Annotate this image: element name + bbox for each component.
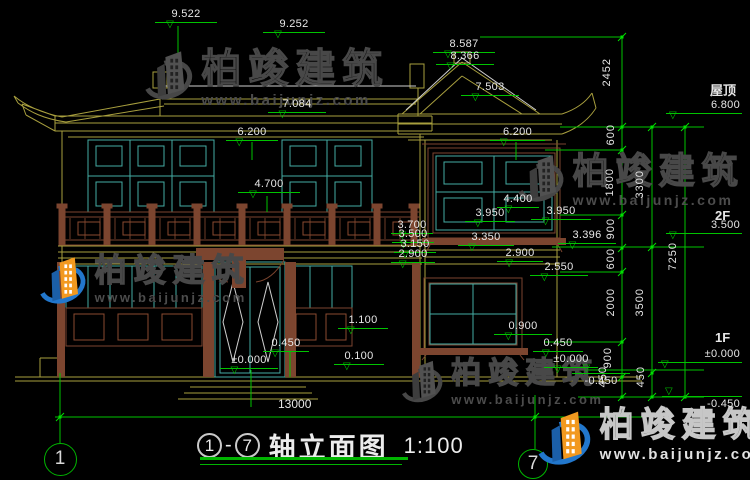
elevation-label: 3.950▽ [531,205,591,220]
chain-dimension-label: 3300 [635,170,646,198]
level-triangle-icon: ▽ [343,362,351,372]
title-underline-thick [200,457,408,460]
level-triangle-icon: ▽ [505,259,513,269]
level-triangle-icon: ▽ [235,138,243,148]
elevation-label: 8.366▽ [436,50,494,65]
title-scale: 1:100 [404,433,464,459]
level-triangle-icon: ▽ [500,138,508,148]
elevation-label: 0.100▽ [334,350,384,365]
elevation-label: 9.252▽ [263,18,325,33]
chain-dimension-label: 600 [606,248,617,269]
level-triangle-icon: ▽ [661,360,669,370]
elevation-label: 6.200▽ [490,126,545,141]
elevation-label: -0.450▽ [662,396,742,412]
chain-dimension-label: 600 [606,124,617,145]
chain-dimension-label: 450 [636,366,647,387]
chain-dimension-label: 900 [606,218,617,239]
elevation-label: 6.200▽ [226,126,278,141]
elevation-label: 0.450▽ [533,337,583,352]
title-axis-bubble-end: 7 [235,433,260,458]
level-triangle-icon: ▽ [399,260,407,270]
level-triangle-icon: ▽ [471,93,479,103]
level-triangle-icon: ▽ [540,273,548,283]
level-triangle-icon: ▽ [468,243,476,253]
elevation-drawing-canvas: 17 柏竣建筑www.baijunjz.com 柏竣建筑www.baijunjz… [0,0,750,480]
elevation-label: 3.950▽ [465,207,515,222]
level-triangle-icon: ▽ [669,111,677,121]
level-triangle-icon: ▽ [166,20,174,30]
chain-dimension-label: 1800 [605,168,616,196]
level-triangle-icon: ▽ [278,110,286,120]
chain-dimension-label: 450 [598,366,609,387]
elevation-label: 0.450▽ [263,337,309,352]
elevation-label: 2.900▽ [497,247,543,262]
chain-dimension-label: 7250 [668,242,679,270]
level-triangle-icon: ▽ [542,217,550,227]
level-triangle-icon: ▽ [554,365,562,375]
elevation-label: 6.800▽ [666,99,742,114]
chain-dimension-label: 3500 [635,288,646,316]
title-axis-bubble-start: 1 [197,433,222,458]
level-triangle-icon: ▽ [446,62,454,72]
elevation-label: 4.700▽ [238,178,300,193]
level-triangle-icon: ▽ [504,332,512,342]
drawing-text-label: 13000 [278,398,311,411]
level-triangle-icon: ▽ [669,231,677,241]
chain-dimension-label: 2000 [606,288,617,316]
elevation-label: 7.084▽ [268,98,326,113]
drawing-text-label: 1F [715,331,730,344]
elevation-label: 7.503▽ [461,81,519,96]
drawing-text-label: 2F [715,209,730,222]
elevation-label: 2.900▽ [391,248,435,263]
level-triangle-icon: ▽ [274,30,282,40]
elevation-label: ±0.000▽ [658,348,742,363]
level-triangle-icon: ▽ [249,190,257,200]
level-triangle-icon: ▽ [474,219,482,229]
elevation-label: 9.522▽ [155,8,217,23]
title-axis-dash: - [225,434,232,457]
elevation-label: 3.350▽ [458,231,514,246]
elevation-label: 2.550▽ [530,261,588,276]
elevation-label: 3.500▽ [666,219,742,234]
level-triangle-icon: ▽ [230,366,238,376]
annotation-layer: 9.522▽9.252▽8.587▽8.366▽7.503▽7.084▽6.20… [0,0,750,480]
elevation-label: 0.900▽ [494,320,552,335]
level-triangle-icon: ▽ [568,241,576,251]
title-underline-thin [200,464,402,465]
level-triangle-icon: ▽ [665,387,673,397]
level-triangle-icon: ▽ [582,364,590,374]
elevation-label: ±0.000▽ [220,354,278,369]
chain-dimension-label: 2452 [602,58,613,86]
level-triangle-icon: ▽ [347,326,355,336]
drawing-text-label: 屋顶 [710,84,736,97]
elevation-label: 1.100▽ [338,314,388,329]
